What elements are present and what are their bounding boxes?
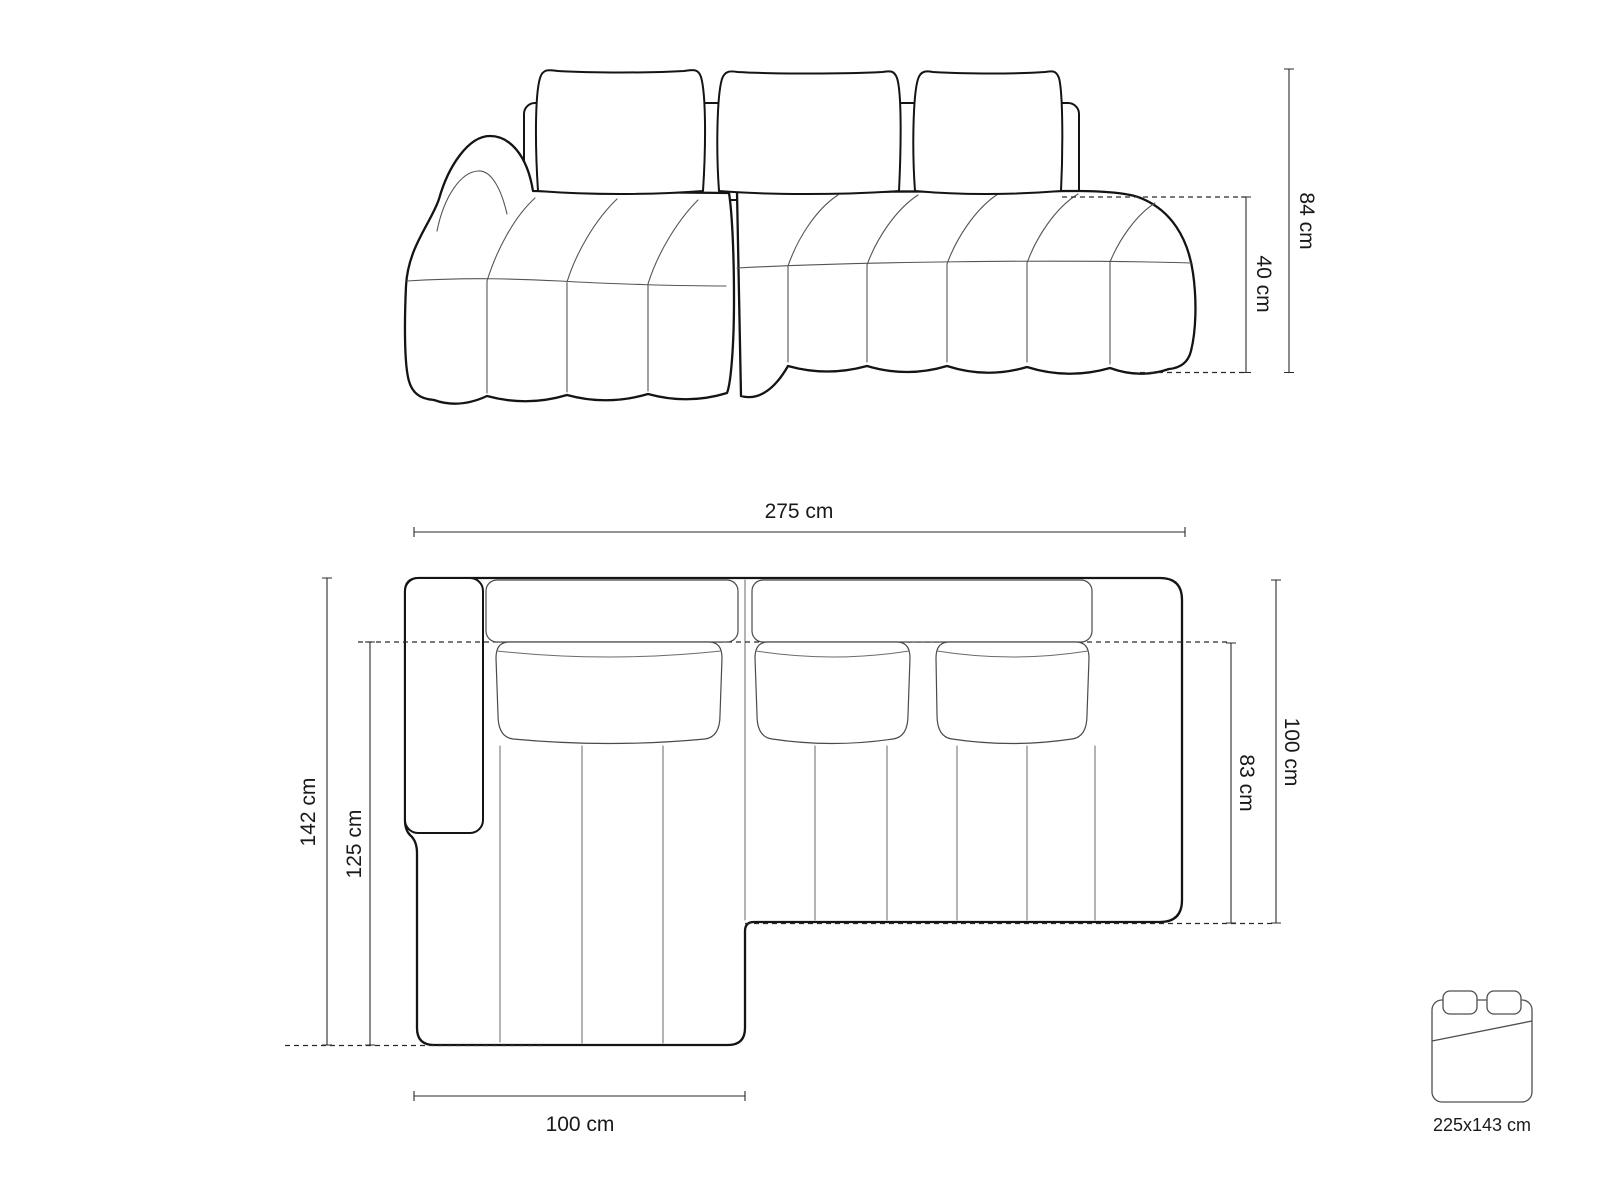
bed-pillow-left (1443, 991, 1477, 1014)
plan-seat-cushion-3 (936, 642, 1089, 744)
dim-label-chaise-width: 100 cm (546, 1113, 615, 1136)
plan-seat-cushion-1 (496, 642, 722, 744)
dim-label-seat-depth: 83 cm (1235, 754, 1258, 811)
plan-back-cushion-2 (752, 580, 1092, 642)
diagram-canvas: 40 cm 84 cm (0, 0, 1600, 1200)
bed-pillow-right (1487, 991, 1521, 1014)
plan-back-cushion-1 (486, 580, 738, 642)
plan-seat-cushion-2 (755, 642, 910, 744)
dim-overall-width: 275 cm (414, 500, 1185, 537)
dim-overall-depth: 142 cm (297, 578, 332, 1045)
front-view: 40 cm 84 cm (405, 69, 1318, 404)
dim-overall-height: 84 cm (1284, 69, 1318, 373)
dim-label-body-depth: 100 cm (1280, 718, 1303, 787)
dim-seat-height: 40 cm (1241, 197, 1275, 373)
sofa-dimension-diagram: 40 cm 84 cm (0, 0, 1600, 1200)
back-pillow-2 (717, 71, 900, 194)
top-view: 275 cm 142 cm 125 cm 83 cm 100 cm 100 cm (285, 500, 1303, 1136)
bed-size-label: 225x143 cm (1433, 1115, 1531, 1135)
back-pillow-1 (536, 70, 705, 194)
dim-chaise-inner-depth: 125 cm (343, 642, 375, 1045)
dim-label-overall-depth: 142 cm (297, 778, 320, 847)
dim-seat-depth: 83 cm (1226, 643, 1258, 923)
dim-label-seat-height: 40 cm (1252, 255, 1275, 312)
back-pillow-3 (913, 71, 1062, 194)
dim-chaise-width: 100 cm (414, 1091, 745, 1136)
dim-label-chaise-inner-depth: 125 cm (343, 810, 366, 879)
plan-arm-left (405, 578, 483, 833)
dim-label-overall-height: 84 cm (1295, 192, 1318, 249)
bed-icon: 225x143 cm (1432, 991, 1532, 1135)
dim-label-overall-width: 275 cm (765, 500, 834, 523)
sofa-right-section (737, 191, 1195, 397)
dim-body-depth: 100 cm (1271, 580, 1303, 923)
bed-frame (1432, 1000, 1532, 1102)
